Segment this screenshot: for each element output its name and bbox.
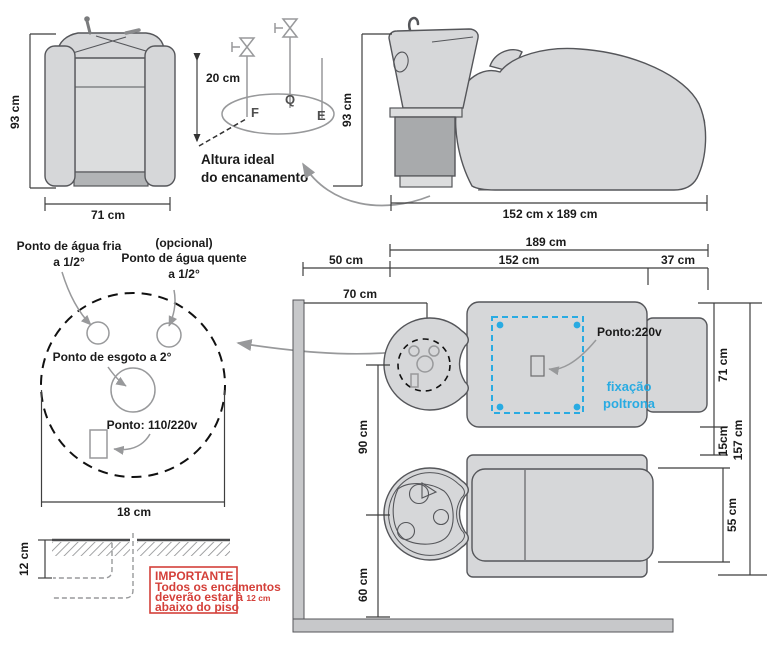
plan-chair-bottom-seat <box>472 469 653 561</box>
drain-point <box>111 368 155 412</box>
fixation-dot-tr <box>574 322 581 329</box>
section-depth-label: 12 cm <box>17 542 31 576</box>
installation-diagram: 93 cm 71 cm F Q E <box>0 0 768 651</box>
detail-dim-width: 18 cm <box>42 390 225 519</box>
floor-point-detail: Ponto de água fria a 1/2° (opcional) Pon… <box>17 236 397 519</box>
cross-section: 12 cm IMPORTANTE Todos os encamentos dev… <box>17 533 281 614</box>
optional-label: (opcional) <box>155 236 212 250</box>
plumbing-caption-1: Altura ideal <box>201 152 275 167</box>
side-dim-footprint: 152 cm x 189 cm <box>391 195 707 221</box>
plumbing-dashed-leader <box>199 119 246 146</box>
front-width-label: 71 cm <box>91 208 125 222</box>
front-dim-width: 71 cm <box>45 197 170 222</box>
side-basin-cabinet <box>395 117 455 176</box>
side-basin-collar <box>390 108 462 117</box>
power-label: Ponto: 110/220v <box>107 418 198 432</box>
front-armrest-left <box>45 46 75 186</box>
plan-152-label: 152 cm <box>499 253 540 267</box>
side-basin-base <box>400 176 452 187</box>
front-base-strip <box>74 172 148 186</box>
plan-dim-row2: 50 cm 152 cm 37 cm <box>303 253 708 290</box>
power-leader-arrow <box>114 434 150 450</box>
side-chair-body <box>456 48 706 190</box>
plan-to-detail-arrow <box>238 343 397 354</box>
floor-hatch-right <box>137 542 230 556</box>
side-dim-height: 93 cm <box>333 34 392 186</box>
plan-60-label: 60 cm <box>356 568 370 602</box>
hot-water-point <box>157 323 181 347</box>
wall-left <box>293 300 304 632</box>
fixation-label-1: fixação <box>607 379 652 394</box>
plan-chair-top: Ponto:220v fixação poltrona <box>467 302 707 427</box>
hot-label-1: Ponto de água quente <box>121 251 247 265</box>
plan-189-label: 189 cm <box>526 235 567 249</box>
front-view: 93 cm 71 cm <box>8 16 175 222</box>
warning-box: IMPORTANTE Todos os encamentos deverão e… <box>150 567 281 614</box>
side-view: 93 cm 152 cm x 189 cm <box>333 18 707 221</box>
plumbing-height-label: 20 cm <box>206 71 240 85</box>
plan-71-label: 71 cm <box>716 348 730 382</box>
plan-70-label: 70 cm <box>343 287 377 301</box>
fixation-dot-tl <box>497 322 504 329</box>
hot-pipe-label: Q <box>285 92 295 107</box>
floor-hatch-left <box>52 542 130 556</box>
warning-line3: abaixo do piso <box>155 600 239 614</box>
cold-label-2: a 1/2° <box>53 255 85 269</box>
plan-power-outlet <box>531 356 544 376</box>
floor-plan: 189 cm 50 cm 152 cm 37 cm 70 cm <box>293 235 767 632</box>
drain-pipe-label: E <box>317 108 326 123</box>
power-point <box>90 430 107 458</box>
plan-dim-90-60: 90 cm 60 cm <box>356 365 390 617</box>
plan-50-label: 50 cm <box>329 253 363 267</box>
detail-width-label: 18 cm <box>117 505 151 519</box>
side-faucet-icon <box>409 18 418 30</box>
drain-label: Ponto de esgoto a 2° <box>53 350 172 364</box>
side-height-label: 93 cm <box>340 93 354 127</box>
side-footprint-label: 152 cm x 189 cm <box>503 207 598 221</box>
plumbing-caption-2: do encanamento <box>201 170 308 185</box>
front-armrest-right <box>145 46 175 186</box>
fixation-label-2: poltrona <box>603 396 656 411</box>
cold-leader-arrow <box>62 272 91 325</box>
side-basin-top <box>389 29 478 108</box>
detail-dashed-circle <box>41 293 225 477</box>
plan-90-label: 90 cm <box>356 420 370 454</box>
section-dim-depth: 12 cm <box>17 540 52 578</box>
front-backrest <box>75 50 145 172</box>
hot-leader-arrow <box>169 290 175 326</box>
hot-label-2: a 1/2° <box>168 267 200 281</box>
plan-37-label: 37 cm <box>661 253 695 267</box>
front-faucet-knob-icon <box>84 16 90 22</box>
fixation-dot-br <box>574 404 581 411</box>
plan-power-label: Ponto:220v <box>597 325 662 339</box>
plan-55-label: 55 cm <box>725 498 739 532</box>
plumbing-dim-height: 20 cm <box>197 60 240 141</box>
plan-basin-top-outline <box>384 318 468 410</box>
front-faucet-icon <box>87 21 90 33</box>
cold-pipe-label: F <box>251 105 259 120</box>
wall-bottom <box>293 619 673 632</box>
plan-157-label: 157 cm <box>731 420 745 461</box>
plan-basin-bottom <box>384 468 468 560</box>
plan-15-label: 15cm <box>716 426 730 457</box>
front-height-label: 93 cm <box>8 95 22 129</box>
cold-label-1: Ponto de água fria <box>17 239 122 253</box>
plan-basin-top <box>384 318 468 410</box>
fixation-dot-bl <box>497 404 504 411</box>
plan-chair-bottom <box>467 455 653 577</box>
